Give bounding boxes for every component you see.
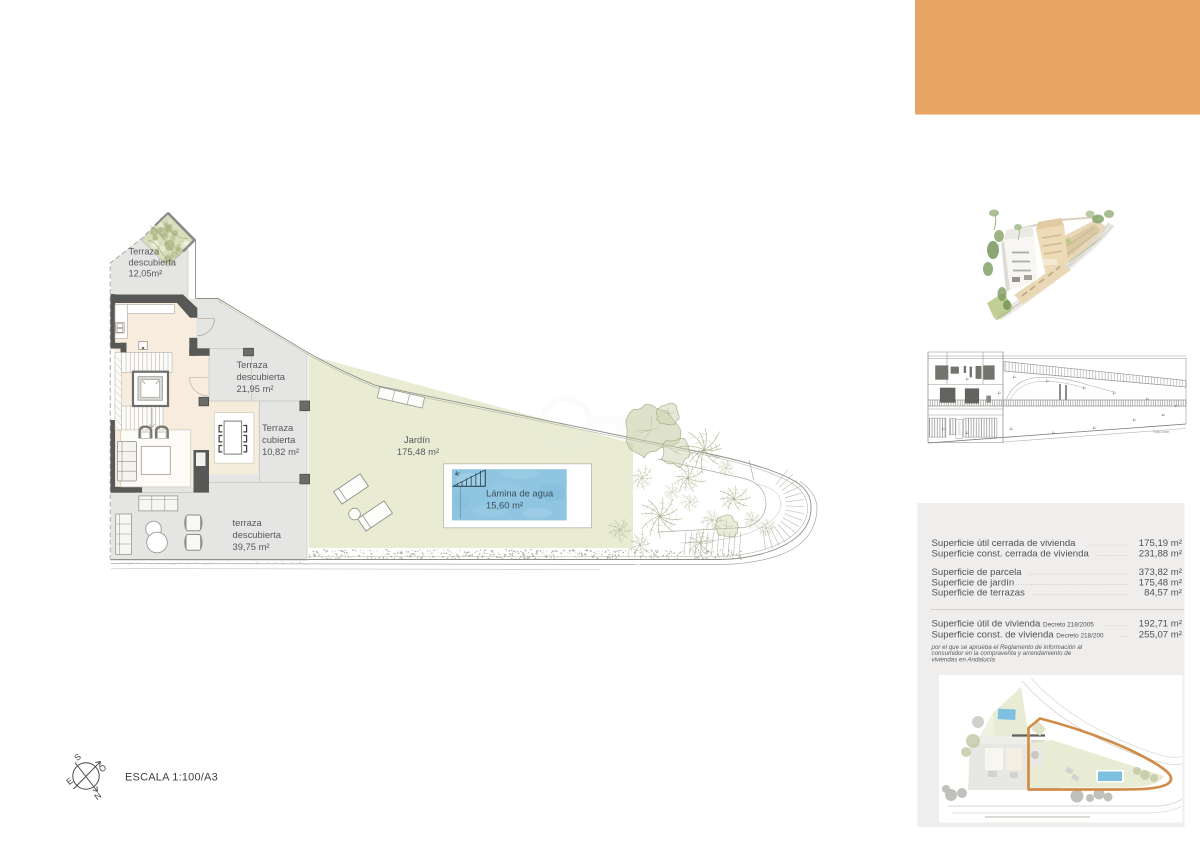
svg-text:descubierta: descubierta <box>129 258 177 268</box>
svg-text:175,48 m²: 175,48 m² <box>397 446 439 457</box>
svg-text:12,05m²: 12,05m² <box>129 269 163 279</box>
svg-text:21,95 m²: 21,95 m² <box>237 383 274 394</box>
svg-text:255,07 m²: 255,07 m² <box>1139 629 1183 640</box>
svg-text:192,71 m²: 192,71 m² <box>1139 619 1183 630</box>
svg-text:231,88 m²: 231,88 m² <box>1139 548 1183 559</box>
svg-text:Plano corte: Plano corte <box>1153 430 1169 434</box>
svg-text:viviendas en Andalucía: viviendas en Andalucía <box>932 656 996 663</box>
svg-text:Lámina de agua: Lámina de agua <box>486 488 554 499</box>
svg-text:Terraza: Terraza <box>129 247 161 257</box>
svg-text:175,19 m²: 175,19 m² <box>1139 538 1183 549</box>
svg-text:Terraza: Terraza <box>262 422 294 433</box>
svg-text:ESCALA 1:100/A3: ESCALA 1:100/A3 <box>125 772 218 784</box>
svg-text:Jardín: Jardín <box>404 434 430 445</box>
svg-text:Superficie de terrazas: Superficie de terrazas <box>932 588 1026 599</box>
svg-text:Superficie const. cerrada de v: Superficie const. cerrada de vivienda <box>932 548 1090 559</box>
svg-text:84,57 m²: 84,57 m² <box>1144 588 1183 599</box>
svg-text:descubierta: descubierta <box>237 371 286 382</box>
svg-text:10,82 m²: 10,82 m² <box>262 446 299 457</box>
svg-text:descubierta: descubierta <box>233 529 282 540</box>
svg-text:cubierta: cubierta <box>262 434 296 445</box>
svg-text:15,60 m²: 15,60 m² <box>486 500 523 511</box>
svg-text:Terraza: Terraza <box>237 359 269 370</box>
svg-text:terraza: terraza <box>233 517 263 528</box>
svg-text:39,75 m²: 39,75 m² <box>233 541 270 552</box>
svg-text:Superficie útil cerrada de viv: Superficie útil cerrada de vivienda <box>932 538 1077 549</box>
